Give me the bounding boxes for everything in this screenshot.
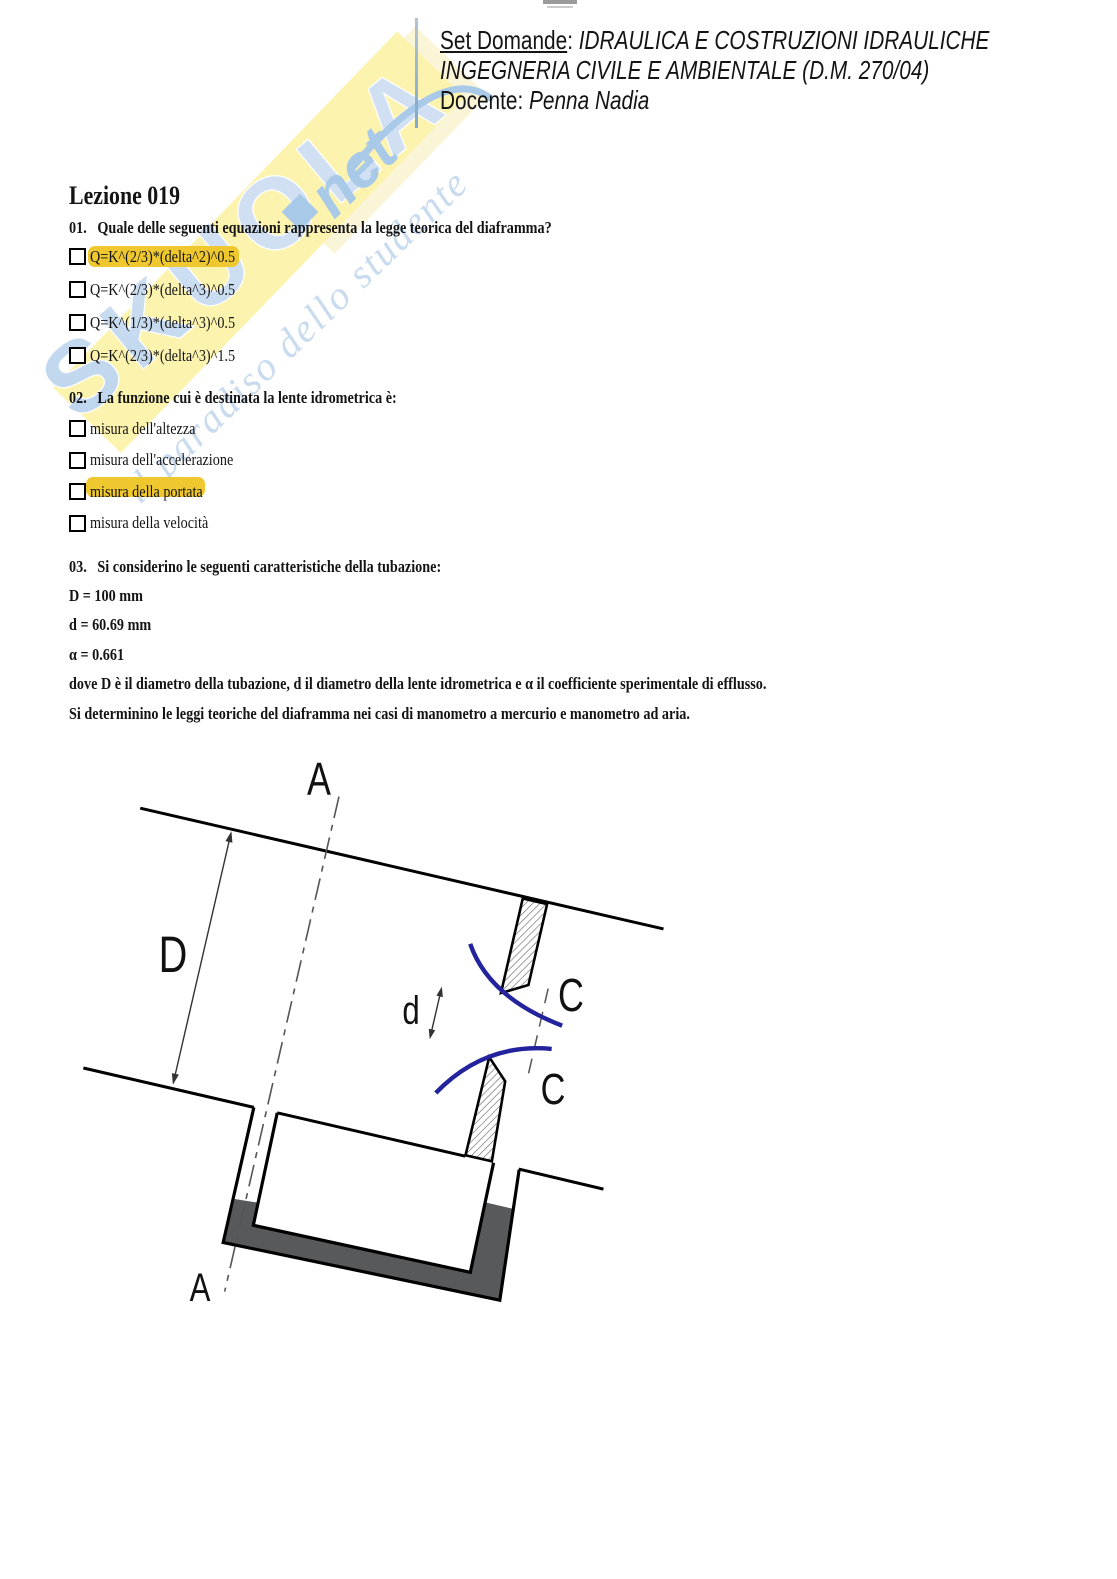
svg-text:C: C [541,1065,566,1114]
svg-text:C: C [558,970,584,1021]
svg-text:d: d [402,988,419,1033]
svg-text:D: D [159,926,188,983]
svg-text:A: A [190,1265,211,1310]
svg-text:A: A [307,754,331,805]
